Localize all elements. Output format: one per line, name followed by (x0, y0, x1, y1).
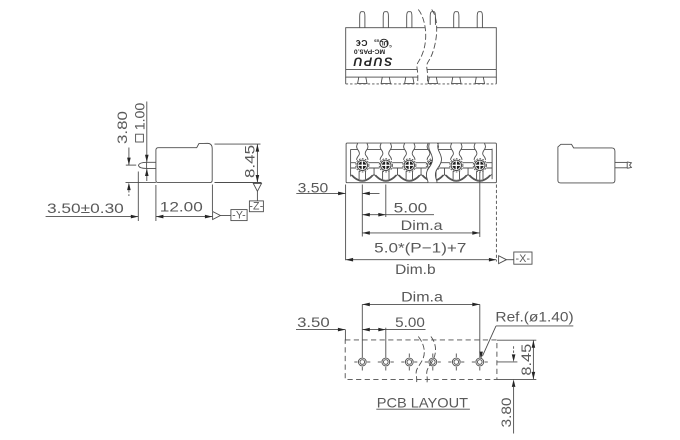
svg-text:Dim.a: Dim.a (401, 218, 443, 233)
svg-text:3.50±0.30: 3.50±0.30 (47, 201, 124, 216)
svg-text:C€: C€ (356, 38, 368, 48)
svg-text:-Z-: -Z- (249, 201, 263, 213)
svg-text:12.00: 12.00 (160, 200, 203, 215)
svg-text:8.45: 8.45 (519, 343, 534, 375)
svg-text:-Y-: -Y- (232, 210, 246, 222)
svg-text:3.50: 3.50 (297, 315, 330, 330)
svg-text:3.50: 3.50 (298, 180, 329, 195)
svg-text:1.00: 1.00 (132, 102, 147, 130)
svg-text:PCB LAYOUT: PCB LAYOUT (377, 395, 469, 410)
svg-text:UL: UL (380, 39, 388, 45)
svg-text:Dim.a: Dim.a (401, 290, 443, 305)
svg-text:us: us (374, 39, 380, 44)
svg-text:8.45: 8.45 (243, 145, 258, 178)
svg-text:5.0*(P−1)+7: 5.0*(P−1)+7 (374, 241, 466, 257)
svg-text:3.80: 3.80 (115, 111, 130, 144)
svg-text:-X-: -X- (516, 253, 531, 265)
svg-text:5.00: 5.00 (395, 315, 425, 330)
svg-text:SUPU: SUPU (352, 54, 392, 68)
svg-text:Dim.b: Dim.b (395, 262, 436, 277)
svg-text:Ref.(ø1.40): Ref.(ø1.40) (495, 309, 573, 324)
svg-text:3.80: 3.80 (499, 397, 514, 427)
svg-text:5.00: 5.00 (394, 201, 428, 216)
svg-text:c: c (389, 44, 392, 49)
